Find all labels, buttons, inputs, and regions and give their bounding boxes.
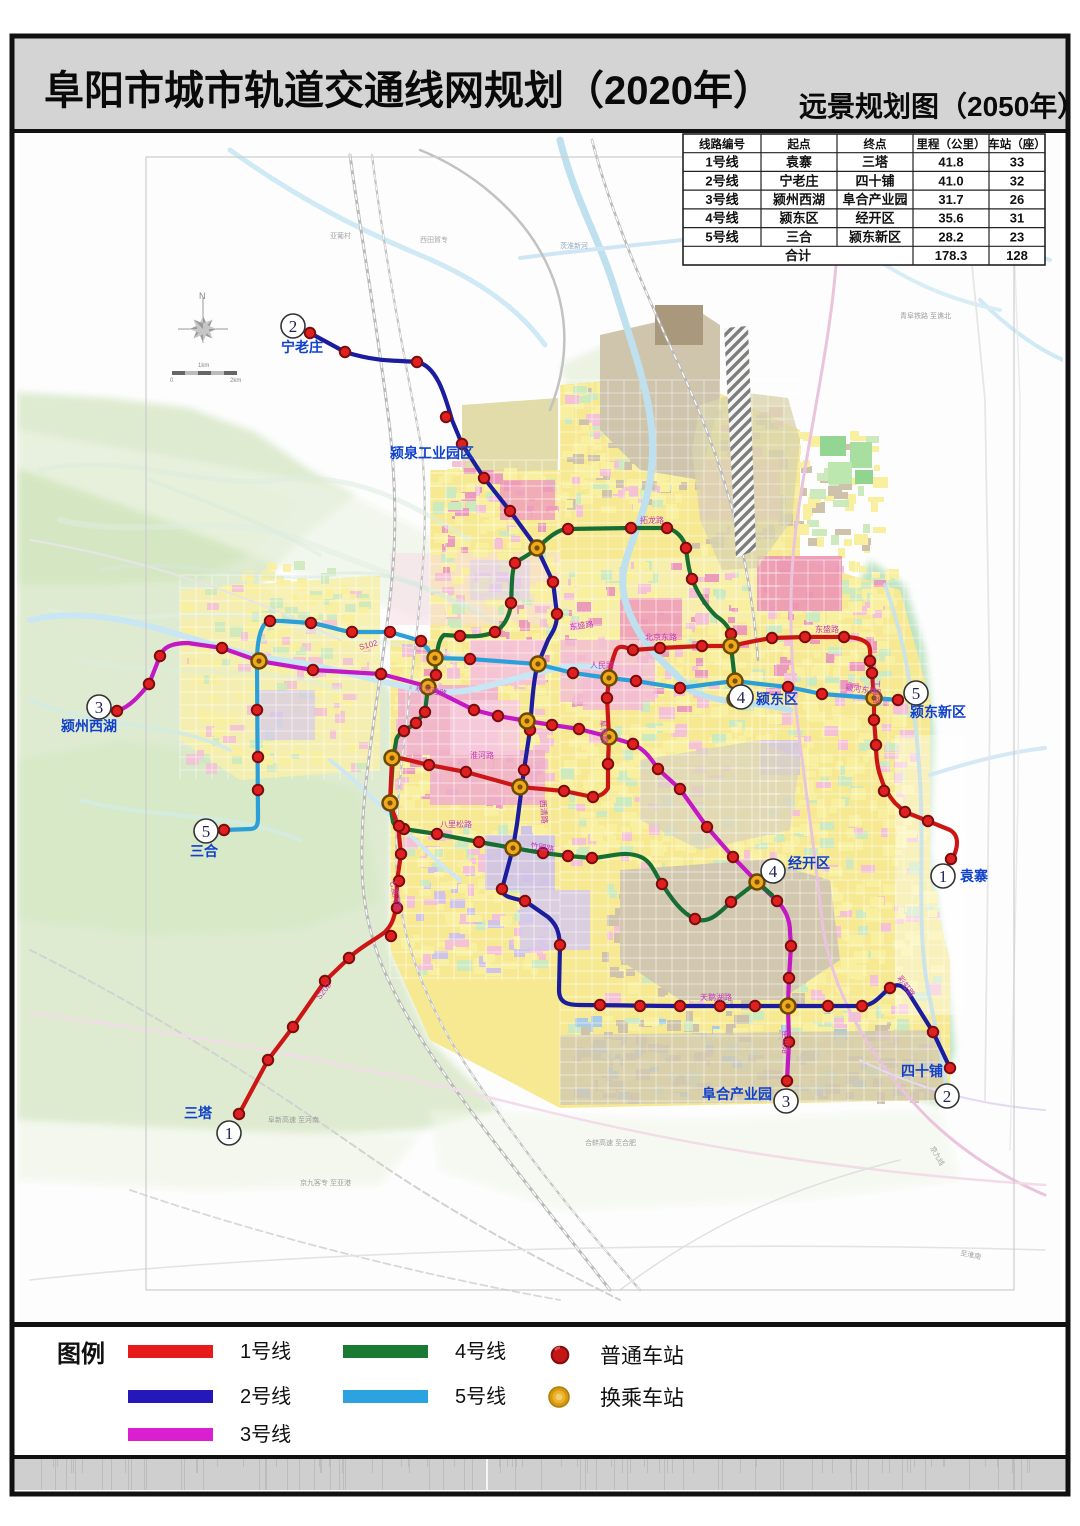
svg-text:茨淮新河: 茨淮新河	[560, 241, 588, 250]
svg-text:图例: 图例	[57, 1341, 105, 1368]
svg-text:2km: 2km	[230, 378, 241, 384]
svg-text:N: N	[199, 291, 206, 301]
svg-text:4号线: 4号线	[455, 1340, 506, 1363]
svg-text:31: 31	[1010, 211, 1024, 226]
svg-text:4: 4	[737, 688, 746, 707]
svg-text:淮河路: 淮河路	[470, 750, 494, 760]
svg-text:41.8: 41.8	[938, 155, 963, 170]
svg-text:颍东区: 颍东区	[779, 211, 818, 226]
svg-text:阜南路: 阜南路	[598, 719, 610, 744]
svg-text:3: 3	[95, 698, 104, 717]
svg-text:宁老庄: 宁老庄	[281, 339, 323, 355]
svg-text:经开区: 经开区	[855, 211, 894, 226]
svg-text:三合: 三合	[786, 229, 813, 244]
svg-text:1km: 1km	[198, 363, 209, 369]
svg-text:经开区: 经开区	[788, 855, 830, 871]
svg-text:32: 32	[1010, 173, 1024, 188]
svg-text:西田賀专: 西田賀专	[420, 235, 448, 244]
svg-text:阜合产业园: 阜合产业园	[842, 192, 907, 207]
svg-text:合蚌高速 至合肥: 合蚌高速 至合肥	[585, 1138, 636, 1147]
svg-text:28.2: 28.2	[938, 229, 963, 244]
svg-text:起点: 起点	[787, 137, 811, 151]
svg-text:1: 1	[939, 867, 948, 886]
svg-text:23: 23	[1010, 229, 1024, 244]
svg-text:128: 128	[1006, 248, 1028, 263]
svg-text:人民路: 人民路	[590, 660, 614, 670]
svg-text:41.0: 41.0	[938, 173, 963, 188]
svg-text:袁寨: 袁寨	[959, 868, 989, 884]
svg-text:三塔: 三塔	[862, 155, 889, 170]
svg-text:阜阳市城市轨道交通线网规划（2020年）: 阜阳市城市轨道交通线网规划（2020年）	[44, 69, 773, 113]
svg-text:颍州西湖: 颍州西湖	[61, 718, 117, 734]
svg-text:三塔: 三塔	[184, 1105, 213, 1121]
svg-text:4号线: 4号线	[705, 211, 738, 226]
svg-text:三合: 三合	[190, 843, 219, 859]
svg-text:合计: 合计	[785, 248, 811, 263]
svg-text:5号线: 5号线	[455, 1385, 506, 1408]
svg-text:京九客专 至亚港: 京九客专 至亚港	[300, 1178, 351, 1187]
svg-text:阜新高速 至河南: 阜新高速 至河南	[268, 1115, 319, 1124]
svg-text:5: 5	[202, 822, 211, 841]
svg-text:普通车站: 普通车站	[600, 1345, 684, 1368]
svg-text:35.6: 35.6	[938, 211, 963, 226]
svg-text:2: 2	[943, 1087, 952, 1106]
svg-text:东盛路: 东盛路	[815, 624, 839, 634]
svg-text:北京东路: 北京东路	[645, 632, 677, 642]
svg-text:2: 2	[289, 317, 298, 336]
svg-text:换乘车站: 换乘车站	[600, 1387, 684, 1410]
svg-text:崔山路: 崔山路	[781, 1030, 791, 1054]
svg-text:颍泉工业园区: 颍泉工业园区	[390, 445, 474, 461]
svg-text:天鹅湖路: 天鹅湖路	[700, 992, 732, 1002]
svg-text:1号线: 1号线	[240, 1340, 291, 1363]
svg-text:八里松路: 八里松路	[440, 819, 472, 829]
svg-text:3号线: 3号线	[705, 192, 738, 207]
svg-text:颍东新区: 颍东新区	[849, 229, 901, 244]
svg-text:青阜铁路 至谯北: 青阜铁路 至谯北	[900, 311, 951, 320]
svg-text:西清路: 西清路	[538, 799, 550, 824]
svg-text:33: 33	[1010, 155, 1024, 170]
svg-text:里程（公里）: 里程（公里）	[917, 137, 986, 151]
svg-text:26: 26	[1010, 192, 1024, 207]
svg-text:颍东区: 颍东区	[756, 691, 798, 707]
svg-text:3号线: 3号线	[240, 1423, 291, 1446]
svg-text:1号线: 1号线	[705, 155, 738, 170]
svg-text:阜合产业园: 阜合产业园	[702, 1086, 772, 1102]
svg-text:2号线: 2号线	[240, 1385, 291, 1408]
svg-text:颍东新区: 颍东新区	[910, 704, 966, 720]
svg-text:四十铺: 四十铺	[855, 173, 894, 188]
svg-text:1: 1	[225, 1124, 234, 1143]
svg-text:拓龙路: 拓龙路	[640, 515, 664, 525]
svg-text:车站（座）: 车站（座）	[988, 137, 1046, 151]
svg-text:178.3: 178.3	[935, 248, 968, 263]
svg-text:颍州西湖: 颍州西湖	[773, 192, 825, 207]
svg-text:线路编号: 线路编号	[699, 137, 745, 151]
svg-text:2号线: 2号线	[705, 173, 738, 188]
svg-text:袁寨: 袁寨	[785, 155, 812, 170]
svg-text:3: 3	[782, 1092, 791, 1111]
svg-text:远景规划图（2050年）: 远景规划图（2050年）	[799, 90, 1080, 122]
svg-text:31.7: 31.7	[938, 192, 963, 207]
svg-text:终点: 终点	[864, 137, 887, 151]
svg-text:宁老庄: 宁老庄	[779, 173, 818, 188]
svg-text:5: 5	[912, 684, 921, 703]
svg-text:四十铺: 四十铺	[901, 1063, 943, 1079]
svg-text:4: 4	[769, 862, 778, 881]
svg-text:亚葡村: 亚葡村	[330, 231, 351, 240]
svg-text:5号线: 5号线	[705, 229, 738, 244]
